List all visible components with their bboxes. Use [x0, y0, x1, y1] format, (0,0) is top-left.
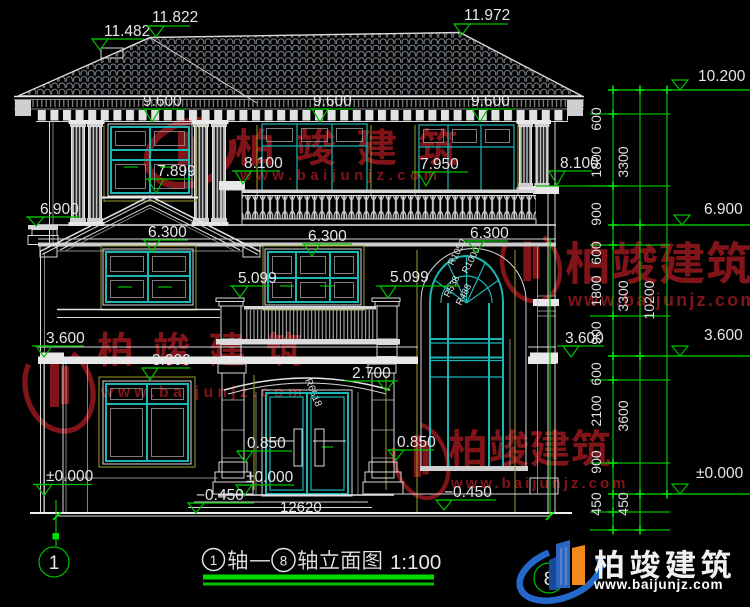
svg-text:5.099: 5.099 — [390, 269, 429, 286]
svg-text:900: 900 — [588, 321, 604, 345]
svg-text:6.300: 6.300 — [308, 228, 347, 245]
svg-text:3.600: 3.600 — [704, 327, 743, 344]
svg-text:−0.450: −0.450 — [444, 484, 492, 501]
svg-text:1: 1 — [210, 553, 218, 568]
svg-text:1800: 1800 — [588, 146, 604, 177]
svg-text:900: 900 — [588, 450, 604, 474]
svg-text:2.700: 2.700 — [352, 365, 391, 382]
svg-text:8: 8 — [280, 554, 288, 569]
svg-text:1: 1 — [49, 553, 60, 574]
svg-text:600: 600 — [588, 241, 604, 265]
svg-text:6.300: 6.300 — [148, 224, 187, 241]
svg-text:3600: 3600 — [615, 400, 631, 431]
svg-text:www.baijunjz.com: www.baijunjz.com — [593, 577, 723, 592]
svg-text:−0.450: −0.450 — [196, 487, 244, 504]
svg-text:600: 600 — [588, 362, 604, 386]
svg-text:3.600: 3.600 — [46, 330, 85, 347]
svg-text:3300: 3300 — [615, 280, 631, 311]
svg-text:600: 600 — [588, 107, 604, 131]
svg-text:±0.000: ±0.000 — [46, 468, 94, 485]
svg-text:1:100: 1:100 — [390, 551, 441, 574]
svg-text:8.100: 8.100 — [244, 155, 283, 172]
svg-text:—: — — [250, 549, 270, 571]
svg-text:9.600: 9.600 — [471, 93, 510, 110]
svg-text:±0.000: ±0.000 — [696, 465, 744, 482]
svg-text:450: 450 — [588, 492, 604, 516]
svg-text:11.822: 11.822 — [152, 9, 198, 26]
svg-text:6.900: 6.900 — [704, 201, 743, 218]
svg-text:7.950: 7.950 — [420, 156, 459, 173]
svg-text:3300: 3300 — [615, 146, 631, 177]
svg-text:11.482: 11.482 — [104, 23, 150, 40]
svg-text:450: 450 — [615, 492, 631, 516]
svg-text:6.300: 6.300 — [470, 225, 509, 242]
svg-text:5.099: 5.099 — [238, 270, 277, 287]
svg-text:11.972: 11.972 — [464, 7, 510, 24]
svg-text:9.600: 9.600 — [313, 93, 352, 110]
svg-text:10200: 10200 — [641, 280, 657, 319]
svg-text:900: 900 — [588, 202, 604, 226]
svg-text:12620: 12620 — [280, 499, 322, 516]
svg-text:6.900: 6.900 — [40, 201, 79, 218]
svg-text:1800: 1800 — [588, 275, 604, 306]
svg-text:0.850: 0.850 — [397, 434, 436, 451]
svg-text:3.000: 3.000 — [152, 352, 191, 369]
svg-text:7.899: 7.899 — [157, 163, 196, 180]
svg-text:10.200: 10.200 — [698, 68, 746, 85]
svg-text:±0.000: ±0.000 — [246, 469, 294, 486]
svg-text:0.850: 0.850 — [247, 435, 286, 452]
svg-text:9.600: 9.600 — [143, 93, 182, 110]
svg-text:2100: 2100 — [588, 395, 604, 426]
